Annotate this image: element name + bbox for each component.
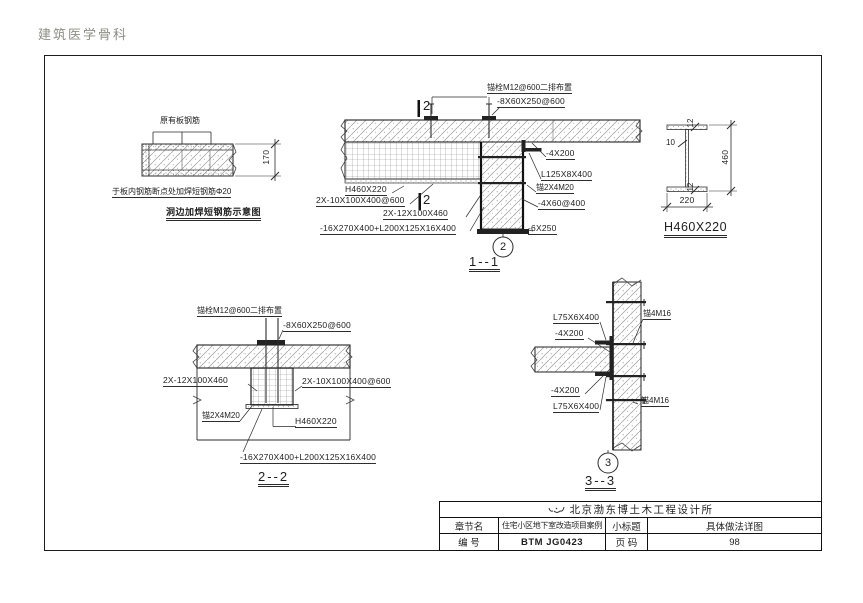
s11-beam-label: H460X220 <box>345 185 387 196</box>
page-value-cell: 98 <box>647 533 821 550</box>
hs-title: H460X220 <box>664 221 727 238</box>
sheet-header-title: 建筑医学骨科 <box>38 29 128 42</box>
s11-anchor-row-label: 锚2X4M20 <box>536 184 574 194</box>
title-block: 北京渤东博土木工程设计所 章节名 住宅小区地下室改造项目案例 小标题 具体做法详… <box>439 501 822 551</box>
company-name: 北京渤东博土木工程设计所 <box>570 502 714 517</box>
hs-flange-bottom-dim: 12 <box>687 180 695 194</box>
company-logo-icon <box>548 505 565 515</box>
s22-top-plate-label: -8X60X250@600 <box>283 321 351 332</box>
s11-title: 1--1 <box>469 255 500 272</box>
s22-anchor-row-label: 锚2X4M20 <box>202 412 240 422</box>
weld-note: 于板内钢筋断点处加焊短钢筋Φ20 <box>112 188 231 198</box>
s11-angle-label: L125X8X400 <box>541 170 592 181</box>
s33-plate-bottom-label: -4X200 <box>551 386 580 397</box>
s11-callout-number: 2 <box>496 242 510 253</box>
s11-base-plate-label: -6X250 <box>528 224 557 235</box>
drawing-border-frame <box>44 55 822 551</box>
s22-bottom-assembly-label: -16X270X400+L200X125X16X400 <box>240 453 376 464</box>
s33-callout-number: 3 <box>601 458 615 469</box>
s33-angle-bottom-label: L75X6X400 <box>553 402 599 413</box>
hs-web-dim: 10 <box>666 139 675 147</box>
s11-web-plates-label: 2X-10X100X400@600 <box>316 196 405 207</box>
s33-anchor-bottom-label: 锚4M16 <box>641 397 669 407</box>
hs-height-dim: 460 <box>721 143 730 171</box>
hs-width-dim: 220 <box>673 196 701 205</box>
s11-top-plate-label: -8X60X250@600 <box>497 97 565 108</box>
page-label-cell: 页 码 <box>605 533 647 550</box>
s11-cut-mark-lower: 2 <box>423 193 430 206</box>
hs-flange-top-dim: 12 <box>687 116 695 130</box>
s11-bottom-assembly-label: -16X270X400+L200X125X16X400 <box>320 224 456 235</box>
s11-end-plates-label: 2X-12X100X460 <box>383 209 448 220</box>
existing-rebar-label: 原有板钢筋 <box>160 117 200 125</box>
chapter-label-cell: 章节名 <box>440 517 498 533</box>
company-row: 北京渤东博土木工程设计所 <box>440 502 821 517</box>
subtitle-label-cell: 小标题 <box>605 517 647 533</box>
s11-stiffener-label: -4X60@400 <box>538 199 585 210</box>
s22-anchor-bolts-label: 锚栓M12@600二排布置 <box>197 307 282 317</box>
s22-beam-label: H460X220 <box>295 417 337 428</box>
s11-anchor-bolts-label: 锚栓M12@600二排布置 <box>487 84 572 94</box>
s22-title: 2--2 <box>258 470 289 487</box>
thickness-dim-170: 170 <box>262 143 271 171</box>
s11-cut-mark-upper: 2 <box>423 99 430 112</box>
slab-edge-detail-title: 洞边加焊短钢筋示意图 <box>166 208 261 221</box>
number-value-cell: BTM JG0423 <box>498 533 605 550</box>
s33-angle-top-label: L75X6X400 <box>553 313 599 324</box>
chapter-value-cell: 住宅小区地下室改造项目案例 <box>498 517 605 533</box>
subtitle-value-cell: 具体做法详图 <box>647 517 821 533</box>
s33-anchor-top-label: 锚4M16 <box>643 310 671 320</box>
drawing-sheet: 建筑医学骨科 <box>0 0 863 603</box>
number-label-cell: 编 号 <box>440 533 498 550</box>
s33-title: 3--3 <box>585 474 616 491</box>
s11-side-plate-label: -4X200 <box>546 149 575 160</box>
s22-end-plates-label: 2X-12X100X460 <box>163 376 228 387</box>
s33-plate-top-label: -4X200 <box>555 329 584 340</box>
s22-web-plates-label: 2X-10X100X400@600 <box>302 377 391 388</box>
